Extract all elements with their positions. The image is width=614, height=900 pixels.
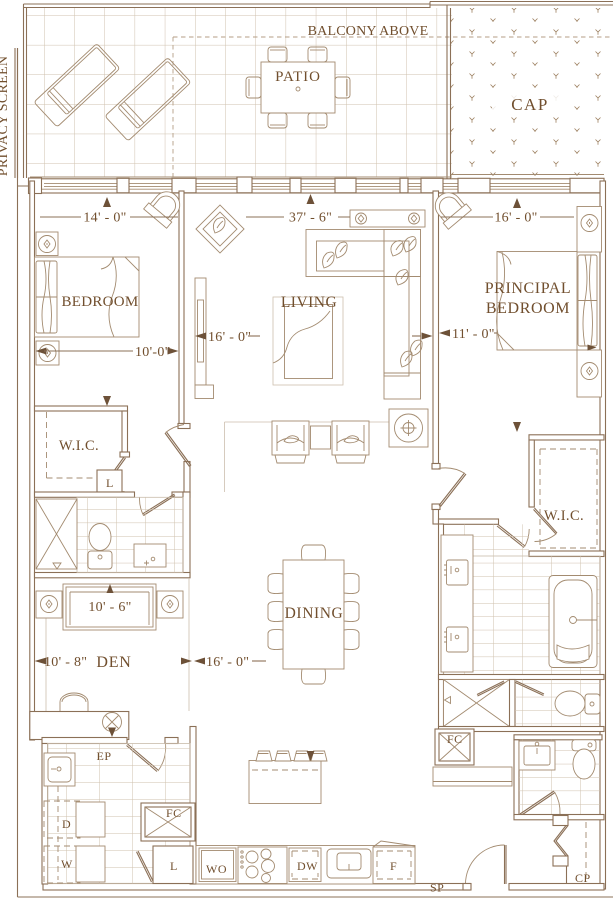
svg-text:BEDROOM: BEDROOM (486, 300, 570, 317)
svg-text:16' - 0": 16' - 0" (208, 330, 251, 345)
svg-text:10'-0": 10'-0" (135, 345, 171, 360)
svg-text:FC: FC (166, 806, 182, 820)
svg-text:PRINCIPAL: PRINCIPAL (485, 280, 572, 297)
svg-text:11' - 0": 11' - 0" (452, 327, 495, 342)
svg-text:10' - 8": 10' - 8" (44, 655, 87, 670)
svg-text:PATIO: PATIO (275, 69, 321, 85)
svg-text:DW: DW (297, 859, 318, 873)
svg-text:D: D (62, 817, 71, 831)
svg-text:16' - 0": 16' - 0" (494, 211, 537, 226)
svg-text:W: W (61, 857, 73, 871)
svg-text:BALCONY ABOVE: BALCONY ABOVE (308, 24, 429, 39)
svg-text:10' - 6": 10' - 6" (88, 600, 131, 615)
svg-text:DEN: DEN (96, 654, 131, 671)
svg-text:WO: WO (206, 862, 227, 876)
svg-text:14' - 0": 14' - 0" (83, 211, 126, 226)
svg-text:L: L (106, 476, 114, 490)
svg-text:FC: FC (447, 732, 463, 746)
svg-text:W.I.C.: W.I.C. (544, 508, 584, 524)
svg-text:CP: CP (575, 871, 591, 885)
svg-text:CAP: CAP (511, 95, 549, 114)
svg-text:L: L (170, 859, 178, 873)
svg-text:DINING: DINING (285, 605, 344, 622)
svg-text:PRIVACY SCREEN: PRIVACY SCREEN (0, 56, 11, 177)
svg-text:BEDROOM: BEDROOM (61, 294, 138, 310)
svg-text:16' - 0": 16' - 0" (206, 655, 249, 670)
svg-text:LIVING: LIVING (281, 294, 337, 311)
svg-text:SP: SP (430, 881, 444, 895)
svg-text:37' - 6": 37' - 6" (289, 211, 332, 226)
svg-text:F: F (390, 859, 397, 873)
svg-text:W.I.C.: W.I.C. (59, 438, 99, 454)
